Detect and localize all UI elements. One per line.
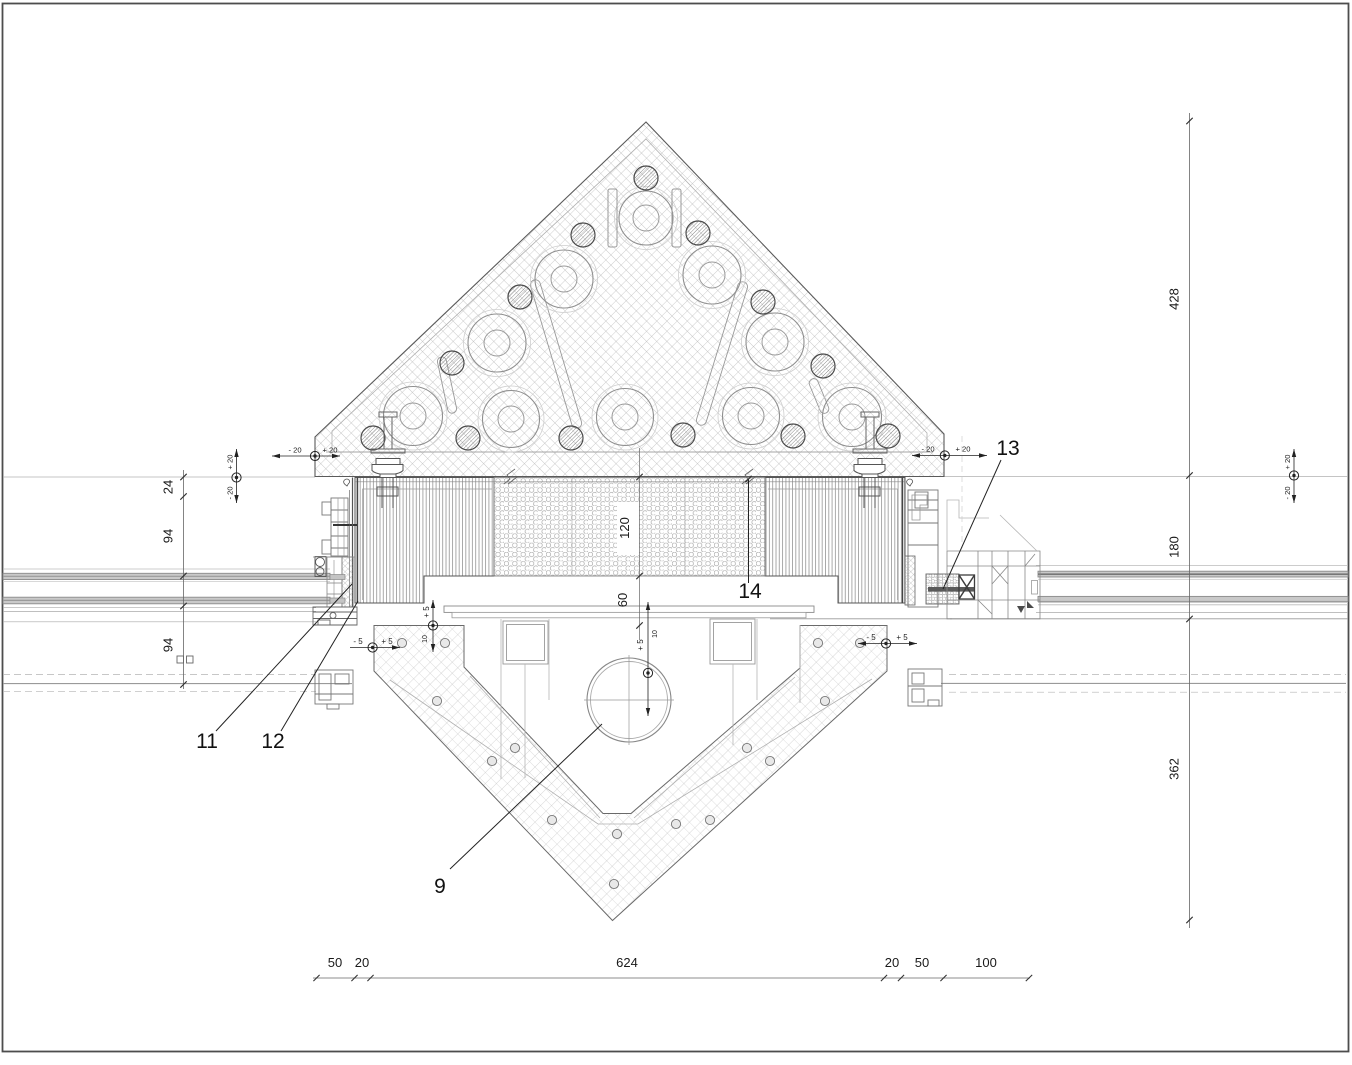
- svg-text:10: 10: [652, 630, 659, 638]
- svg-text:+ 20: + 20: [226, 455, 235, 470]
- svg-text:362: 362: [1167, 758, 1182, 780]
- svg-text:+ 20: + 20: [323, 446, 338, 455]
- svg-text:60: 60: [615, 593, 630, 607]
- svg-text:100: 100: [975, 955, 997, 970]
- svg-text:- 20: - 20: [921, 445, 934, 454]
- svg-text:+ 5: + 5: [422, 606, 431, 618]
- svg-text:- 20: - 20: [1283, 486, 1292, 499]
- svg-text:+ 5: + 5: [636, 639, 645, 651]
- svg-text:+ 5: + 5: [896, 633, 908, 642]
- svg-text:120: 120: [617, 517, 632, 539]
- svg-text:+ 20: + 20: [1283, 455, 1292, 470]
- svg-text:+ 5: + 5: [381, 637, 393, 646]
- svg-text:10: 10: [422, 635, 429, 643]
- svg-text:20: 20: [355, 955, 369, 970]
- svg-text:94: 94: [161, 529, 176, 543]
- svg-text:- 5: - 5: [353, 637, 363, 646]
- svg-text:624: 624: [616, 955, 638, 970]
- svg-text:- 5: - 5: [866, 633, 876, 642]
- svg-text:9: 9: [434, 875, 446, 898]
- svg-text:- 20: - 20: [288, 446, 301, 455]
- svg-text:24: 24: [161, 480, 176, 494]
- svg-text:11: 11: [196, 730, 218, 753]
- svg-text:50: 50: [328, 955, 342, 970]
- svg-text:20: 20: [885, 955, 899, 970]
- svg-text:14: 14: [738, 580, 762, 603]
- svg-text:94: 94: [161, 638, 176, 652]
- svg-text:180: 180: [1167, 536, 1182, 558]
- svg-text:428: 428: [1167, 288, 1182, 310]
- svg-text:12: 12: [261, 730, 284, 753]
- svg-text:+ 20: + 20: [956, 445, 971, 454]
- svg-text:50: 50: [915, 955, 929, 970]
- svg-text:- 20: - 20: [226, 486, 235, 499]
- svg-text:13: 13: [996, 437, 1019, 460]
